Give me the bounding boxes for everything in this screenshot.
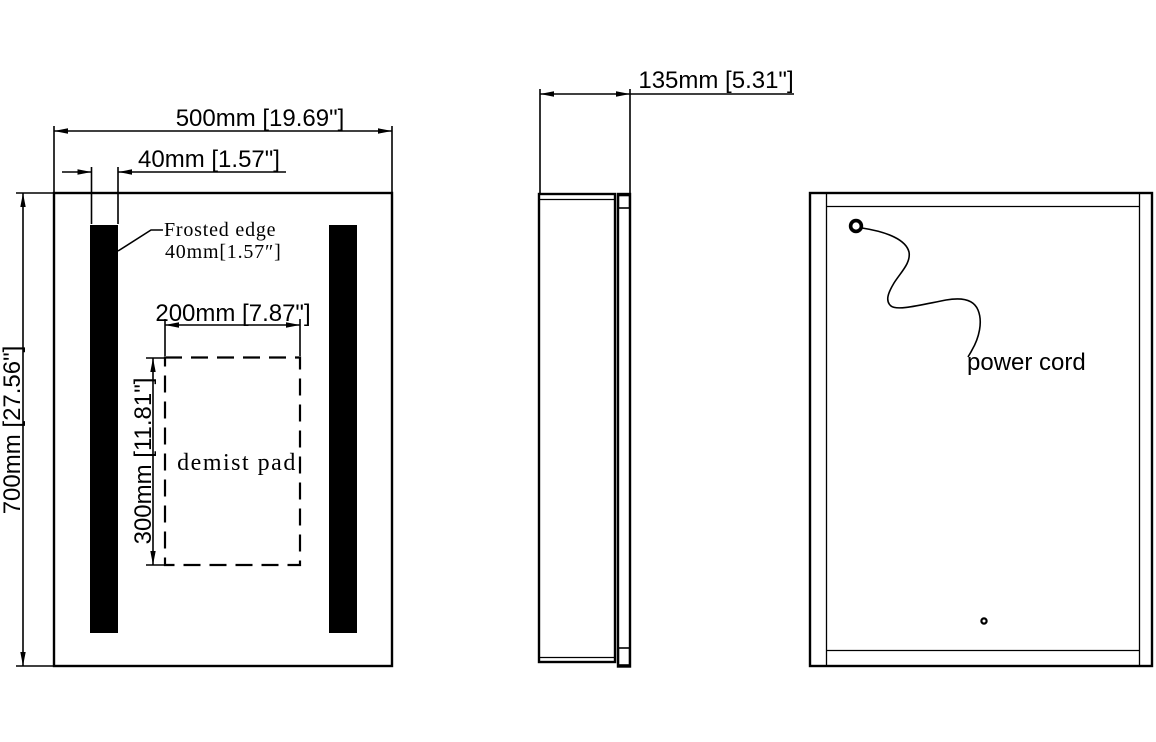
arrowhead-right bbox=[118, 169, 132, 174]
dim-demist-height-label: 300mm [11.81"] bbox=[130, 378, 157, 545]
dim-strip-width: 40mm [1.57"] bbox=[62, 146, 286, 224]
arrowhead-top bbox=[150, 358, 155, 372]
front-view: demist pad 500mm [19.69"] 40mm [1.57"] bbox=[0, 105, 392, 666]
dim-strip-width-label: 40mm [1.57"] bbox=[138, 146, 280, 173]
frosted-edge-label-line1: Frosted edge bbox=[164, 219, 276, 241]
door-hinge-top bbox=[619, 196, 630, 209]
led-strip-right bbox=[329, 225, 357, 633]
arrowhead-right bbox=[378, 128, 392, 133]
arrowhead-left bbox=[78, 169, 92, 174]
technical-drawing: demist pad 500mm [19.69"] 40mm [1.57"] bbox=[0, 0, 1156, 742]
dim-demist-width: 200mm [7.87"] bbox=[155, 300, 310, 356]
dim-demist-height: 300mm [11.81"] bbox=[130, 358, 166, 565]
led-strip-left bbox=[90, 225, 118, 633]
arrowhead-bottom bbox=[20, 652, 25, 666]
dim-depth: 135mm [5.31"] bbox=[540, 67, 794, 193]
dim-depth-label: 135mm [5.31"] bbox=[638, 67, 793, 94]
frosted-edge-label-line2: 40mm[1.57″] bbox=[165, 241, 282, 263]
dim-overall-width-label: 500mm [19.69"] bbox=[176, 105, 345, 132]
cord-grommet bbox=[851, 221, 862, 232]
arrowhead-top bbox=[20, 193, 25, 207]
back-cabinet-outline bbox=[810, 193, 1152, 666]
frosted-edge-callout: Frosted edge 40mm[1.57″] bbox=[118, 219, 282, 263]
power-cord-label: power cord bbox=[967, 349, 1086, 376]
dim-demist-width-label: 200mm [7.87"] bbox=[155, 300, 310, 327]
side-view: 135mm [5.31"] bbox=[539, 67, 794, 667]
leader-line bbox=[118, 230, 163, 251]
power-cord-line bbox=[862, 228, 980, 357]
arrowhead-left bbox=[540, 91, 554, 96]
drain-hole bbox=[981, 618, 986, 623]
back-view: power cord bbox=[810, 193, 1152, 666]
arrowhead-left bbox=[54, 128, 68, 133]
arrowhead-bottom bbox=[150, 551, 155, 565]
door-hinge-bottom bbox=[619, 648, 630, 665]
demist-pad-label: demist pad bbox=[177, 450, 297, 476]
side-cabinet-body bbox=[539, 194, 615, 662]
dim-overall-height: 700mm [27.56"] bbox=[0, 193, 54, 666]
arrowhead-right bbox=[616, 91, 630, 96]
side-mirror-door bbox=[618, 194, 630, 667]
drawing-svg: demist pad 500mm [19.69"] 40mm [1.57"] bbox=[0, 0, 1156, 742]
dim-overall-height-label: 700mm [27.56"] bbox=[0, 346, 26, 515]
